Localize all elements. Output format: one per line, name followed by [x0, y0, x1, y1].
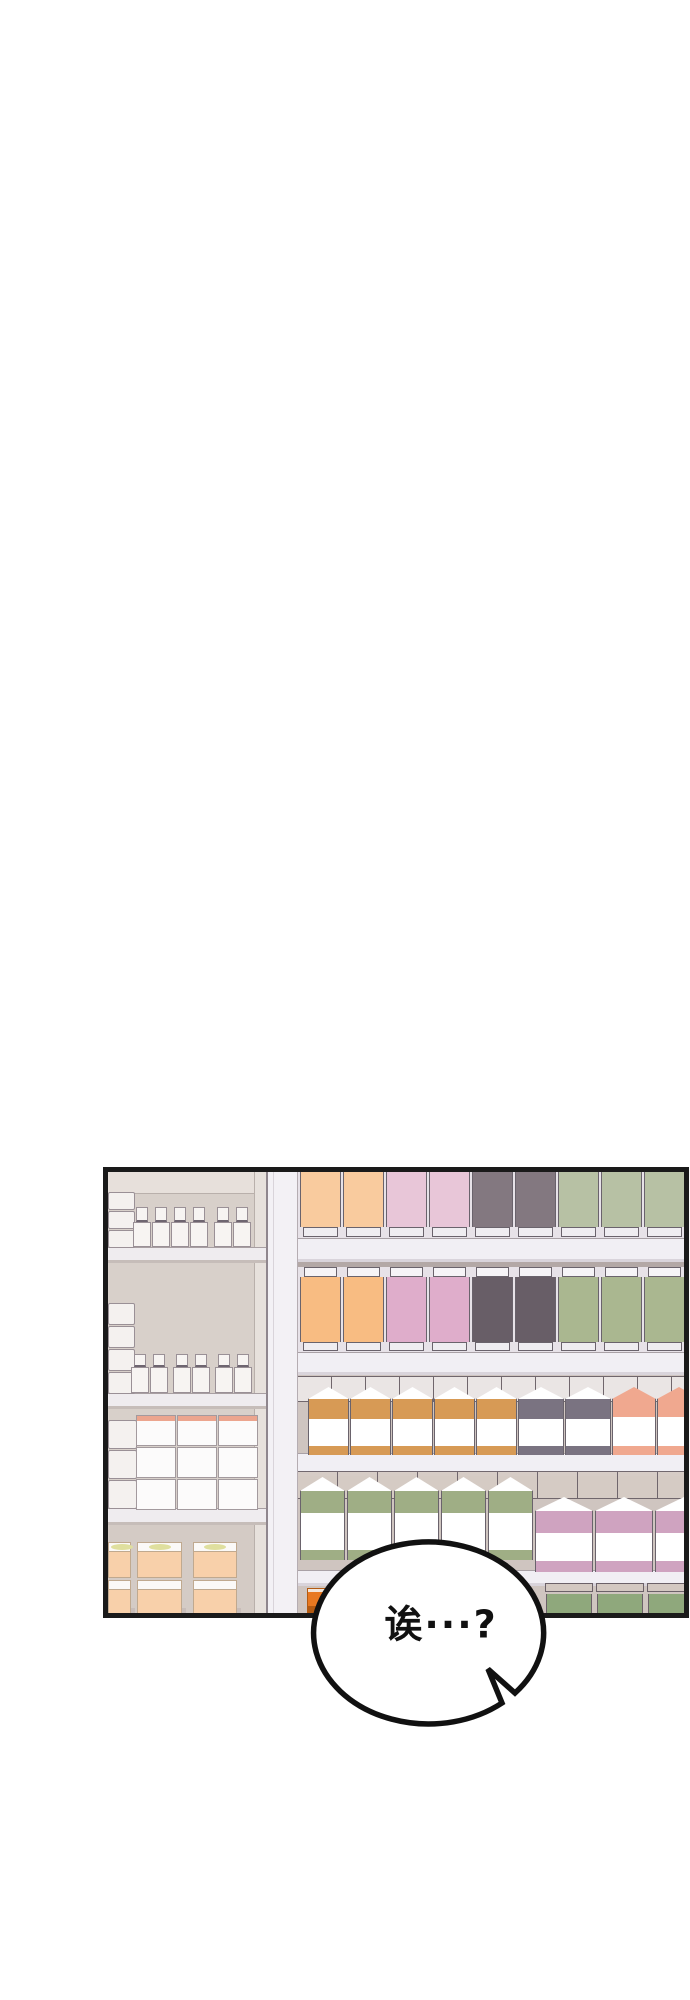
milk-bottle-cap: [134, 1354, 146, 1367]
carton-base: [518, 1227, 553, 1237]
carton-top-tan: [647, 1583, 684, 1592]
stacked-container: [108, 1192, 135, 1210]
carton: [558, 1277, 599, 1342]
gable-carton: [518, 1387, 564, 1455]
shelf-board: [108, 1247, 266, 1261]
carton: [300, 1277, 341, 1342]
white-container: [218, 1479, 258, 1510]
peach-container: [137, 1580, 182, 1613]
white-container: [218, 1447, 258, 1478]
carton-base: [432, 1227, 467, 1237]
container-trim: [137, 1416, 175, 1421]
carton-base: [647, 1342, 682, 1351]
shelf-board: [108, 1393, 266, 1407]
carton: [300, 1172, 341, 1227]
carton-cap: [304, 1267, 337, 1277]
shelf-board-shadow: [298, 1259, 684, 1262]
carton: [515, 1172, 556, 1227]
shelf-board: [298, 1238, 684, 1260]
milk-bottle: [133, 1222, 151, 1247]
milk-bottle-cap: [174, 1207, 186, 1222]
white-container: [218, 1415, 258, 1446]
carton: [429, 1277, 470, 1342]
milk-bottle: [192, 1367, 210, 1393]
page: 诶···?: [0, 0, 690, 2000]
stacked-container: [108, 1326, 135, 1348]
milk-bottle: [150, 1367, 168, 1393]
carton-base: [604, 1227, 639, 1237]
shelf-board-shadow: [298, 1372, 684, 1375]
milk-bottle-cap: [237, 1354, 249, 1367]
carton: [601, 1277, 642, 1342]
white-container: [136, 1479, 176, 1510]
carton-top-green: [648, 1594, 684, 1613]
shelf-board-shadow: [108, 1406, 266, 1409]
carton-cap: [519, 1267, 552, 1277]
shelf-board: [108, 1508, 266, 1523]
milk-bottle: [131, 1367, 149, 1393]
left-shelf-unit: [108, 1172, 266, 1613]
lid-oval: [204, 1544, 226, 1550]
carton-cap: [390, 1267, 423, 1277]
milk-bottle-cap: [218, 1354, 230, 1367]
carton-cap: [648, 1267, 681, 1277]
milk-bottle: [214, 1222, 232, 1247]
carton: [343, 1277, 384, 1342]
carton: [472, 1172, 513, 1227]
stacked-container: [108, 1480, 137, 1509]
shelf-board-shadow: [108, 1260, 266, 1263]
carton-base: [561, 1227, 596, 1237]
gable-carton: [565, 1387, 611, 1455]
lid-oval: [111, 1544, 133, 1550]
carton-cap: [562, 1267, 595, 1277]
carton-cap: [605, 1267, 638, 1277]
carton-base: [346, 1227, 381, 1237]
carton-cap: [347, 1267, 380, 1277]
carton-base: [604, 1342, 639, 1351]
milk-bottle-cap: [176, 1354, 188, 1367]
peach-container-lid: [109, 1581, 130, 1590]
carton-top-tan: [596, 1583, 644, 1592]
carton-base: [346, 1342, 381, 1351]
milk-bottle: [190, 1222, 208, 1247]
milk-bottle: [234, 1367, 252, 1393]
milk-bottle-cap: [136, 1207, 148, 1222]
gable-carton: [392, 1387, 433, 1455]
carton: [472, 1277, 513, 1342]
carton-top-green: [597, 1594, 643, 1613]
gable-carton: [595, 1497, 653, 1572]
milk-bottle-cap: [195, 1354, 207, 1367]
stacked-container: [108, 1303, 135, 1325]
shelf-board: [298, 1352, 684, 1373]
gable-carton: [350, 1387, 391, 1455]
carton-base: [303, 1342, 338, 1351]
carton-base: [475, 1342, 510, 1351]
stacked-container: [108, 1420, 137, 1449]
milk-bottle: [173, 1367, 191, 1393]
shelf-pillar: [266, 1172, 298, 1613]
carton: [429, 1172, 470, 1227]
white-container: [136, 1415, 176, 1446]
peach-container: [108, 1580, 131, 1613]
stacked-container: [108, 1230, 135, 1248]
peach-container: [137, 1542, 182, 1578]
carton: [386, 1172, 427, 1227]
carton: [343, 1172, 384, 1227]
speech-bubble-text: 诶···?: [384, 1594, 497, 1649]
peach-container: [193, 1580, 237, 1613]
carton-base: [432, 1342, 467, 1351]
carton-base: [518, 1342, 553, 1351]
gable-carton: [612, 1387, 656, 1455]
pillar-inner-line: [273, 1172, 274, 1613]
peach-container-lid: [138, 1581, 181, 1590]
carton-cap: [476, 1267, 509, 1277]
milk-bottle-cap: [193, 1207, 205, 1222]
carton: [601, 1172, 642, 1227]
wall-top: [108, 1172, 266, 1194]
carton-base: [303, 1227, 338, 1237]
carton-base: [389, 1342, 424, 1351]
stacked-container: [108, 1211, 135, 1229]
peach-container: [108, 1542, 131, 1578]
white-container: [177, 1415, 217, 1446]
carton-base: [561, 1342, 596, 1351]
peach-container: [193, 1542, 237, 1578]
gable-carton: [308, 1387, 349, 1455]
carton: [644, 1172, 684, 1227]
milk-bottle: [171, 1222, 189, 1247]
carton: [558, 1172, 599, 1227]
shelf-board-shadow: [108, 1522, 266, 1525]
white-container: [177, 1447, 217, 1478]
gable-carton: [476, 1387, 517, 1455]
carton-base: [647, 1227, 682, 1237]
stacked-container: [108, 1450, 137, 1479]
milk-bottle: [233, 1222, 251, 1247]
milk-bottle: [215, 1367, 233, 1393]
peach-container-lid: [194, 1581, 236, 1590]
carton: [644, 1277, 684, 1342]
lid-oval: [149, 1544, 171, 1550]
white-container: [136, 1447, 176, 1478]
gable-carton: [434, 1387, 475, 1455]
container-trim: [178, 1416, 216, 1421]
carton-base: [475, 1227, 510, 1237]
milk-bottle-cap: [236, 1207, 248, 1222]
gable-carton: [657, 1387, 684, 1455]
carton: [515, 1277, 556, 1342]
carton-cap: [433, 1267, 466, 1277]
milk-bottle: [152, 1222, 170, 1247]
container-trim: [219, 1416, 257, 1421]
white-container: [177, 1479, 217, 1510]
milk-bottle-cap: [155, 1207, 167, 1222]
milk-bottle-cap: [217, 1207, 229, 1222]
carton: [386, 1277, 427, 1342]
milk-bottle-cap: [153, 1354, 165, 1367]
carton-base: [389, 1227, 424, 1237]
